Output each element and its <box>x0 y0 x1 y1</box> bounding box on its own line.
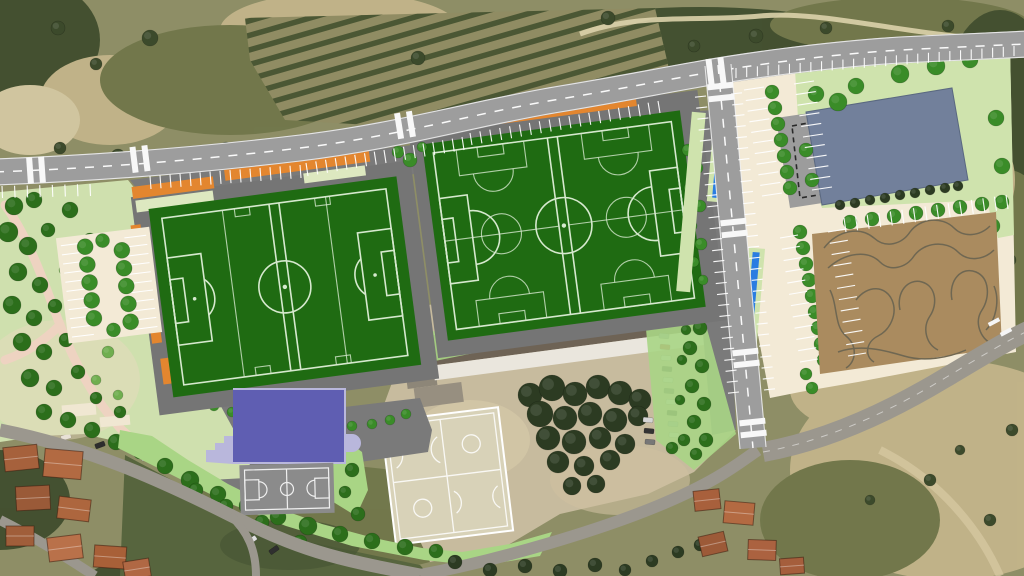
west-parking-lot <box>56 227 162 344</box>
screenshot-root <box>0 0 1024 576</box>
basketball-court <box>239 463 334 515</box>
masterplan-map <box>0 0 1024 576</box>
football-field-left <box>125 145 439 416</box>
